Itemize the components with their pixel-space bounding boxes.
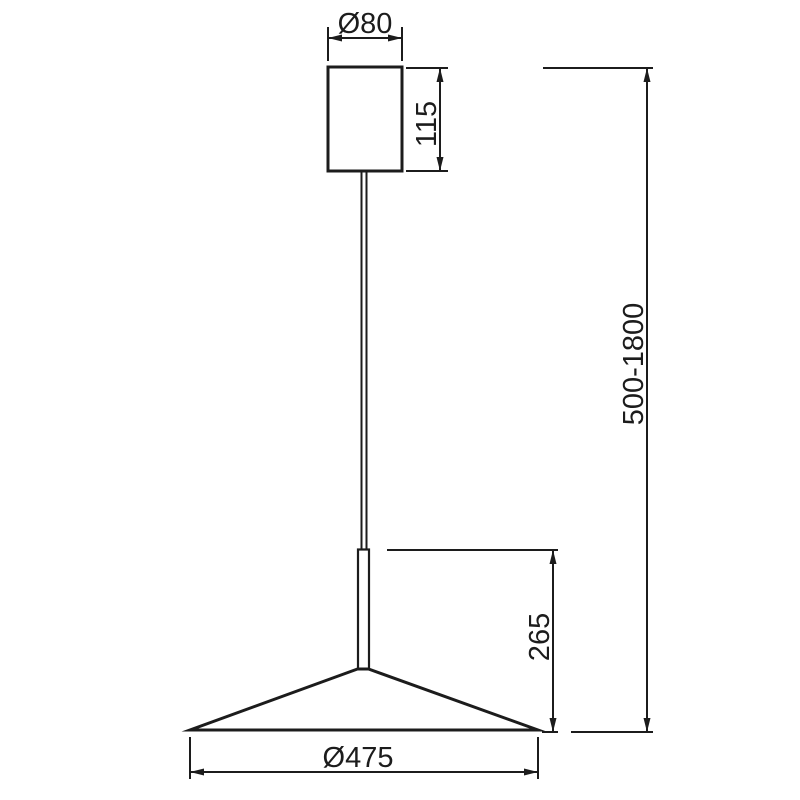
dimension-suspension-range: 500-1800 (543, 68, 653, 732)
arrowhead-up (644, 68, 651, 82)
arrowhead-left (190, 769, 204, 776)
shade-diameter-label: Ø475 (323, 742, 394, 774)
canopy-diameter-label: Ø80 (338, 8, 393, 40)
shade-outline (190, 669, 538, 730)
dimension-shade-diameter: Ø475 (190, 737, 538, 779)
drawing-svg: Ø80 115 500-1800 265 (0, 0, 800, 800)
canopy-height-label: 115 (411, 101, 443, 147)
lamp-outline (190, 67, 538, 730)
stem-outline (358, 550, 369, 670)
technical-drawing: Ø80 115 500-1800 265 (0, 0, 800, 800)
ceiling-canopy-outline (328, 67, 402, 171)
dimension-canopy-height: 115 (406, 68, 448, 171)
arrowhead-down (550, 718, 557, 732)
body-height-label: 265 (524, 613, 556, 661)
arrowhead-down (437, 157, 444, 171)
arrowhead-up (437, 68, 444, 82)
arrowhead-down (644, 718, 651, 732)
suspension-range-label: 500-1800 (618, 303, 650, 426)
dimension-canopy-diameter: Ø80 (328, 8, 402, 61)
arrowhead-up (550, 550, 557, 564)
arrowhead-right (524, 769, 538, 776)
